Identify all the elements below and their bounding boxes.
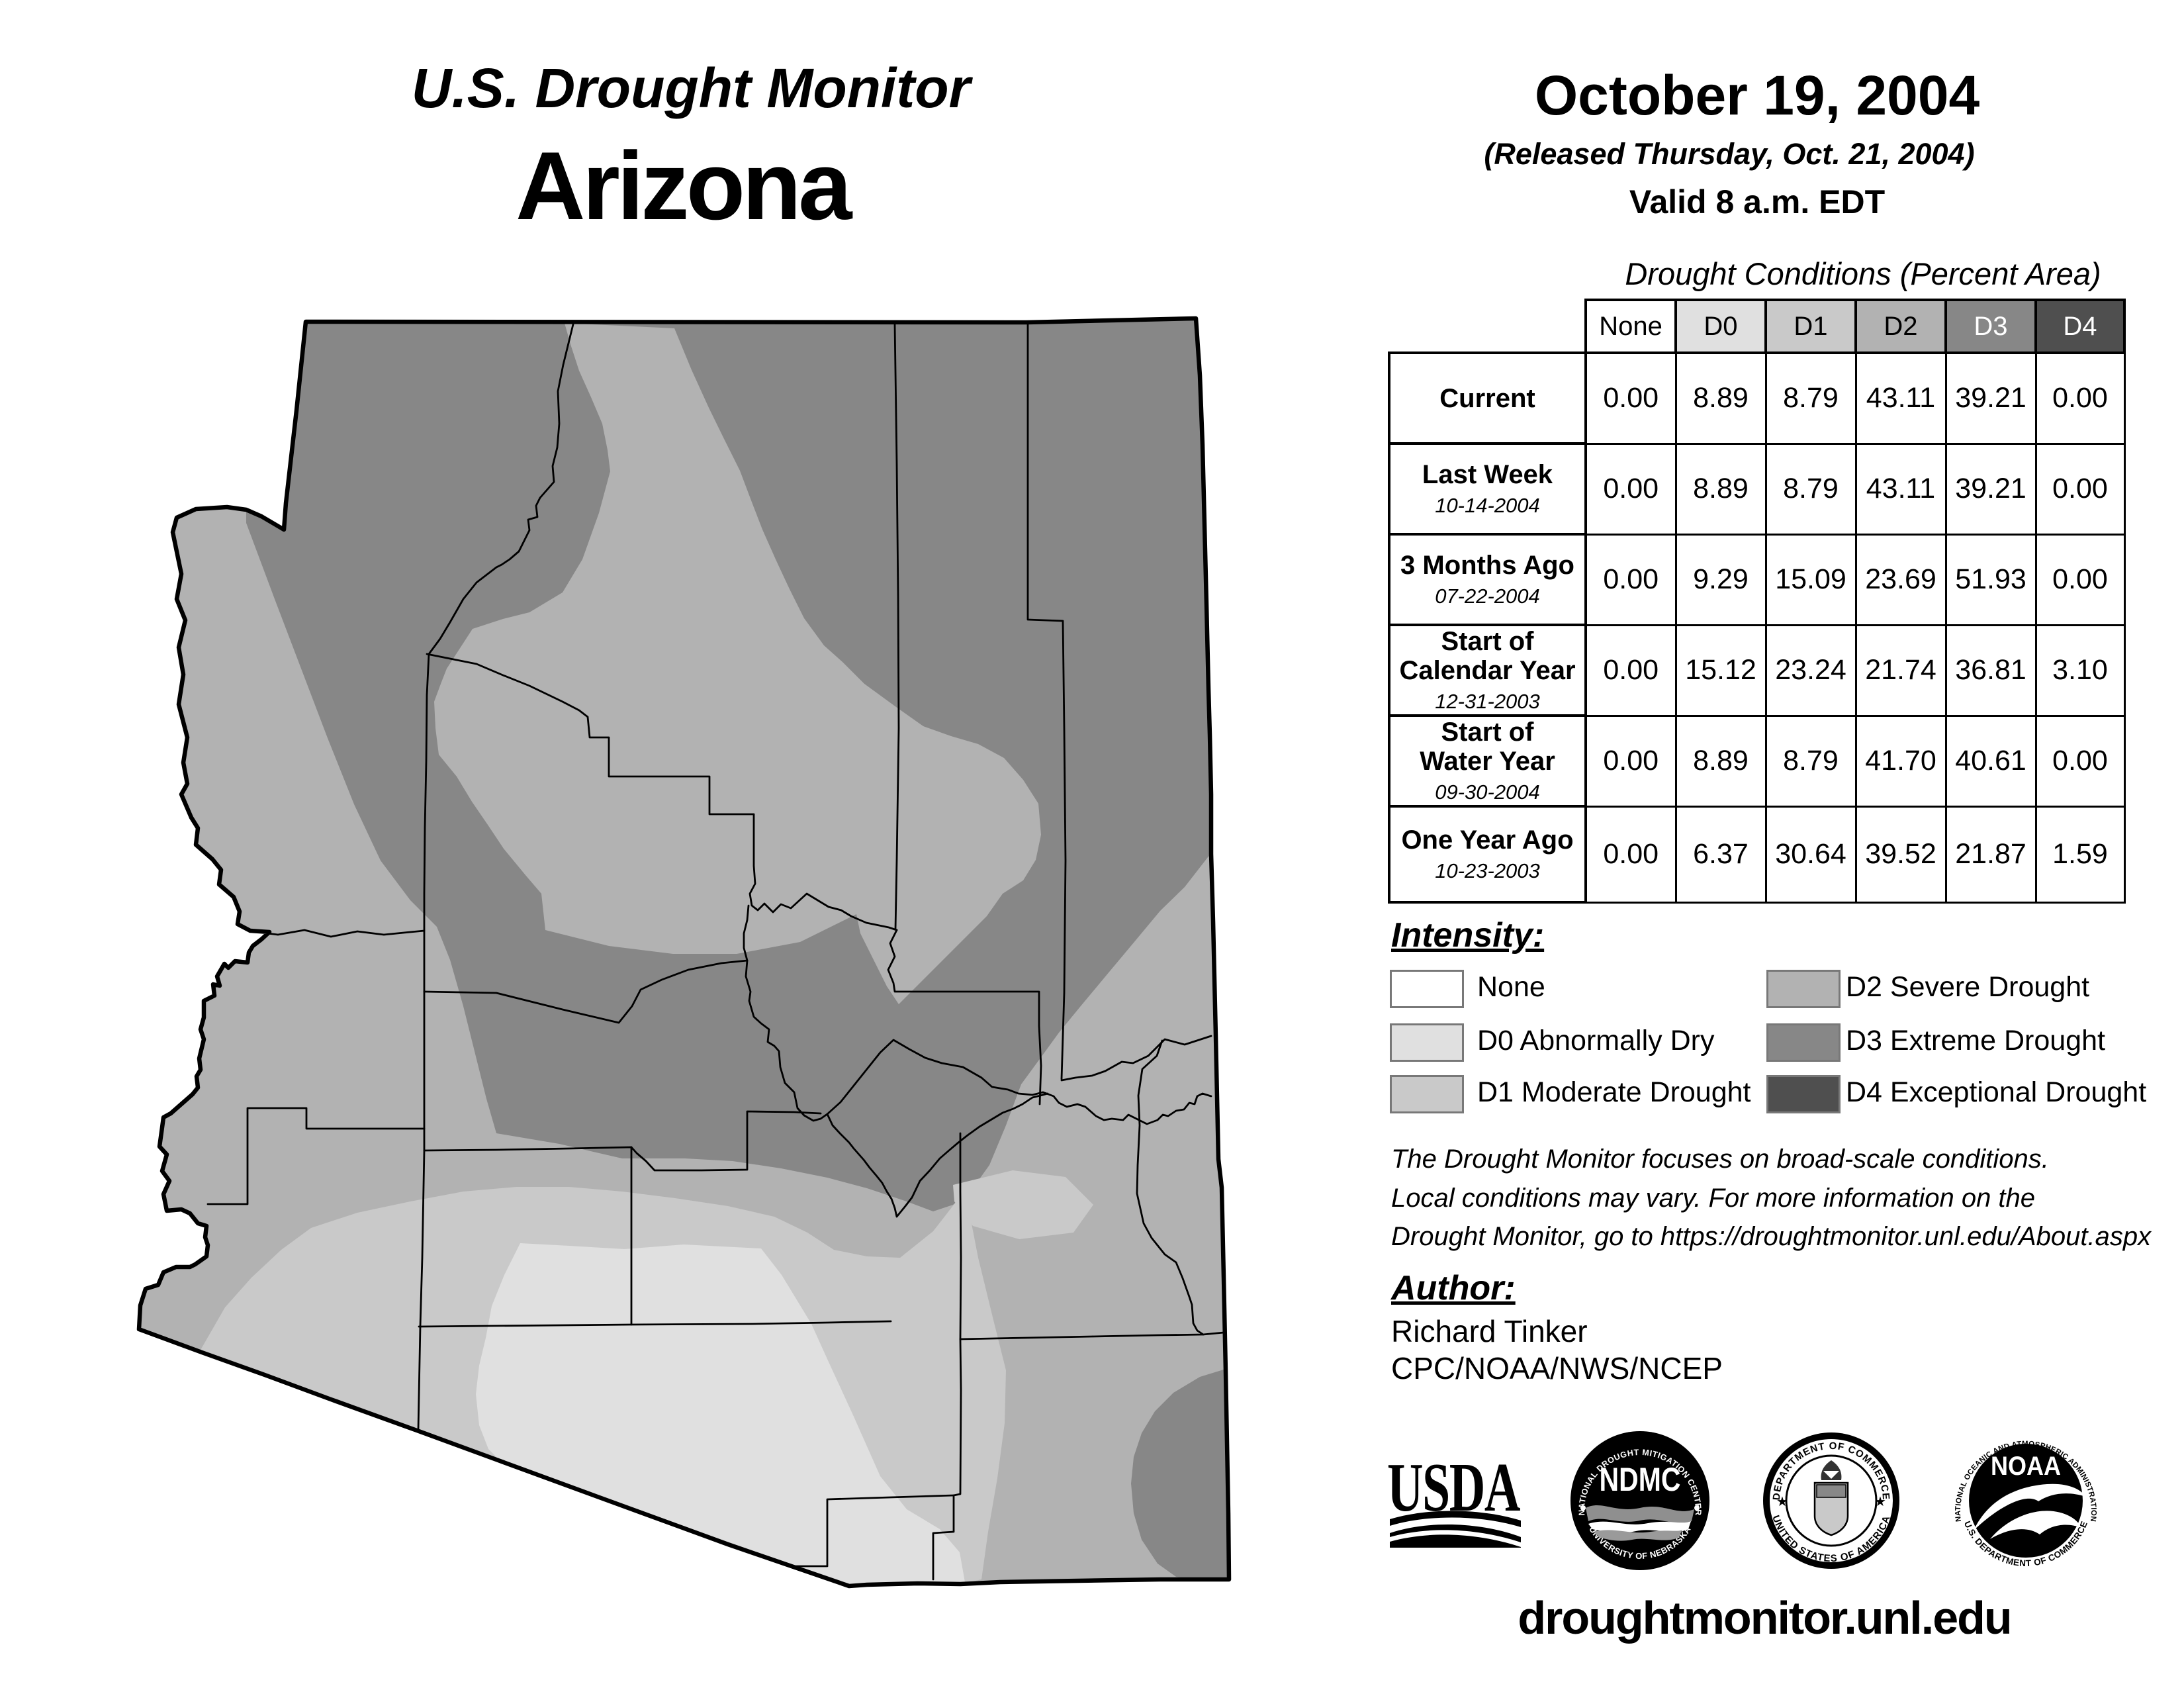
svg-text:★: ★ <box>1776 1495 1788 1509</box>
svg-text:NDMC: NDMC <box>1600 1461 1681 1498</box>
svg-text:NOAA: NOAA <box>1991 1452 2061 1481</box>
svg-text:★: ★ <box>1874 1495 1886 1509</box>
